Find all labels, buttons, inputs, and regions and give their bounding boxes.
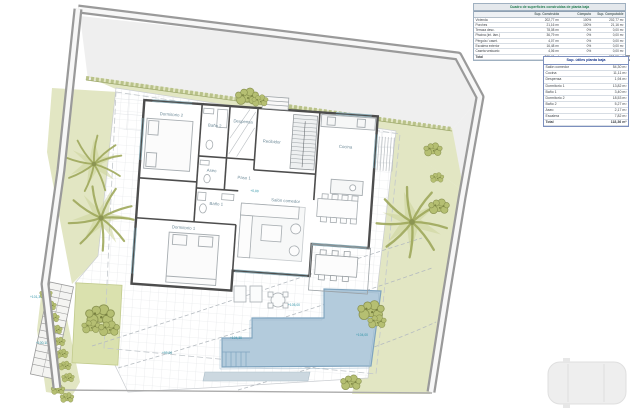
- areas-useful-table-title: Sup. útiles planta baja: [544, 57, 628, 65]
- bed-dormitorio1: [166, 232, 219, 285]
- level-pool-c: +104,00: [356, 333, 368, 337]
- level-salon: +0,00: [250, 189, 259, 194]
- pool-steps: [222, 352, 250, 367]
- stair-escalera: [290, 115, 318, 171]
- room-label-bano1: Baño 1: [209, 201, 224, 207]
- areas-built-table-body: Vivienda202,77 m²100%202,77 m²Porches21,…: [474, 17, 625, 60]
- room-label-paso: Paso 1: [237, 175, 251, 181]
- site-plan-drawing: Dormitorio 2 Baño 2 Despensa Aseo Paso 1…: [0, 0, 630, 409]
- areas-useful-table: Sup. útiles planta baja Salón comedor54,…: [543, 56, 629, 127]
- living-furniture: [238, 203, 306, 261]
- pool-overflow-band: [203, 372, 310, 381]
- table-row: Total118,36 m²: [544, 119, 628, 125]
- areas-built-table-title: Cuadro de superficies construidas de pla…: [474, 4, 625, 11]
- room-label-cocina: Cocina: [339, 144, 353, 150]
- level-stair-b: +100,10: [36, 341, 48, 345]
- car: [548, 358, 626, 408]
- room-label-bano2: Baño 2: [208, 123, 223, 129]
- areas-useful-table-body: Salón comedor54,30 m²Cocina11,11 m²Despe…: [544, 65, 628, 125]
- areas-built-table: Cuadro de superficies construidas de pla…: [473, 3, 626, 61]
- house: Dormitorio 2 Baño 2 Despensa Aseo Paso 1…: [131, 88, 397, 301]
- room-label-aseo: Aseo: [207, 168, 218, 174]
- level-pool-b: +104,30: [230, 336, 242, 340]
- level-pool-a: +105,00: [288, 303, 300, 307]
- level-terrace: +99,90: [162, 351, 172, 355]
- bed-dormitorio2: [144, 118, 193, 171]
- floor-plan-page: Dormitorio 2 Baño 2 Despensa Aseo Paso 1…: [0, 0, 630, 409]
